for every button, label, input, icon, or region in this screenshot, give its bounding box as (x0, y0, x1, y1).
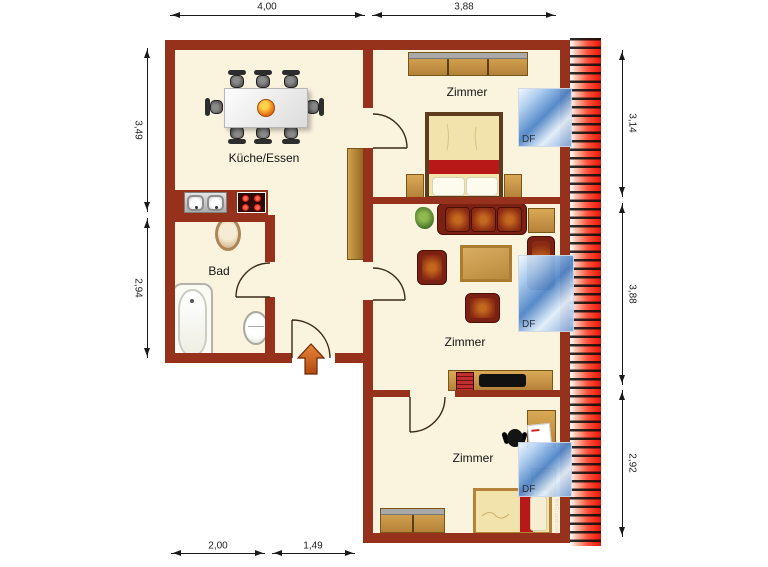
dimension-line (622, 390, 623, 537)
dimension-label: 1,49 (303, 541, 322, 552)
skylight-label: DF (522, 134, 535, 145)
dimension-label: 2,94 (133, 278, 144, 297)
dimension-line (147, 218, 148, 358)
skylight-label: DF (522, 484, 535, 495)
dimension-line (622, 203, 623, 385)
skylight-label: DF (522, 319, 535, 330)
dimension-label: 4,00 (257, 2, 276, 13)
dimension-line (272, 553, 355, 554)
dimension-line (372, 15, 556, 16)
skylight-window: DF (518, 88, 572, 147)
floorplan-canvas: DF DF DF Küche/Essen Bad Zimmer Zimmer Z… (0, 0, 768, 567)
dimension-label: 3,49 (133, 120, 144, 139)
door-bedroom-bottom (410, 397, 445, 432)
dimension-label: 2,00 (208, 541, 227, 552)
door-living (373, 268, 405, 300)
dimension-label: 3,88 (627, 284, 638, 303)
door-bedroom-top (373, 114, 407, 148)
bed-crease (447, 124, 477, 150)
skylight-window: DF (518, 255, 574, 332)
door-bath (236, 263, 270, 297)
skylight-window: DF (518, 442, 572, 497)
dimension-line (147, 48, 148, 212)
dimension-label: 3,14 (627, 113, 638, 132)
dimension-line (170, 15, 365, 16)
dimension-line (171, 553, 265, 554)
door-arc-layer (0, 0, 768, 567)
dimension-line (622, 50, 623, 197)
dimension-label: 3,88 (454, 2, 473, 13)
dimension-label: 2,92 (627, 453, 638, 472)
entrance-arrow (298, 344, 324, 374)
bed-crease (482, 513, 509, 519)
